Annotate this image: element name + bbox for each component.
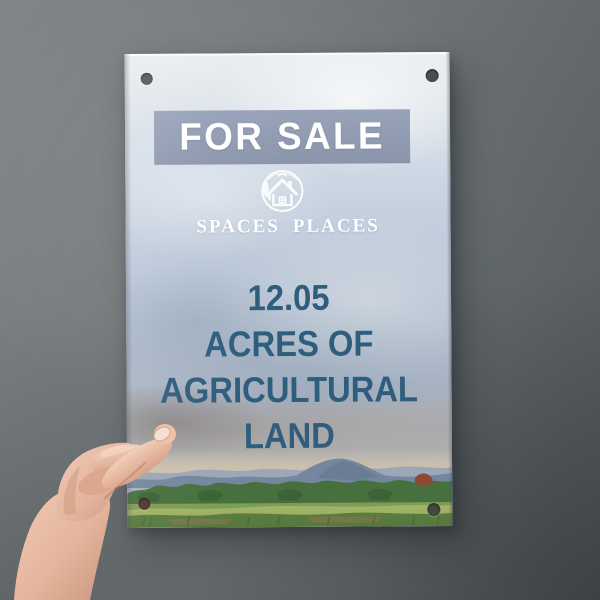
headline-line-agricultural: AGRICULTURAL <box>141 366 437 414</box>
headline-line-acreage: 12.05 <box>141 274 437 322</box>
grommet-hole-top-left <box>141 73 153 85</box>
grommet-hole-bottom-right <box>427 503 440 516</box>
hand-back <box>57 443 130 522</box>
for-sale-label: FOR SALE <box>179 115 385 159</box>
for-sale-banner: FOR SALE <box>154 109 410 165</box>
forearm <box>14 485 110 600</box>
grommet-hole-bottom-left <box>138 498 150 510</box>
grommet-hole-top-right <box>426 69 439 82</box>
brand-name: SPACESPLACES <box>126 215 451 239</box>
photo-scene: FOR SALE SPACESPLACES 12.05 ACRES OF AGR… <box>0 0 600 600</box>
house-leaves-circle-icon <box>258 167 306 215</box>
brand-word-spaces: SPACES <box>196 216 280 238</box>
headline-line-land: LAND <box>141 412 437 460</box>
for-sale-sign: FOR SALE SPACESPLACES 12.05 ACRES OF AGR… <box>125 52 453 528</box>
headline-line-acres-of: ACRES OF <box>141 320 437 368</box>
knuckle-shade <box>64 466 80 515</box>
landscape-photo <box>127 452 452 528</box>
middle-finger <box>74 461 129 501</box>
brand-word-places: PLACES <box>293 215 380 237</box>
sign-headline: 12.05 ACRES OF AGRICULTURAL LAND <box>126 274 452 460</box>
